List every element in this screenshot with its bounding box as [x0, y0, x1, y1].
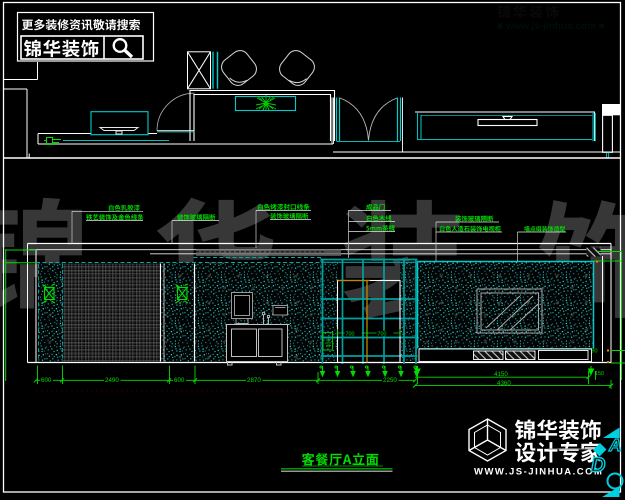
svg-text:150: 150 [595, 371, 604, 377]
svg-text:600: 600 [41, 377, 52, 384]
svg-text:600: 600 [174, 377, 185, 384]
svg-text:700: 700 [378, 332, 387, 338]
svg-text:A: A [608, 435, 622, 455]
svg-text:■ www.js-jinhua.com ■: ■ www.js-jinhua.com ■ [497, 21, 605, 32]
svg-text:2870: 2870 [247, 377, 261, 384]
svg-text:90: 90 [592, 349, 598, 355]
svg-text:4150: 4150 [494, 371, 508, 378]
svg-text:D: D [591, 455, 605, 477]
svg-text:2490: 2490 [105, 377, 119, 384]
svg-text:4360: 4360 [497, 380, 511, 387]
svg-text:2250: 2250 [383, 377, 397, 384]
svg-text:700: 700 [346, 332, 355, 338]
svg-text:400: 400 [327, 339, 333, 348]
svg-text:WWW.JS-JINHUA.COM: WWW.JS-JINHUA.COM [474, 467, 603, 478]
